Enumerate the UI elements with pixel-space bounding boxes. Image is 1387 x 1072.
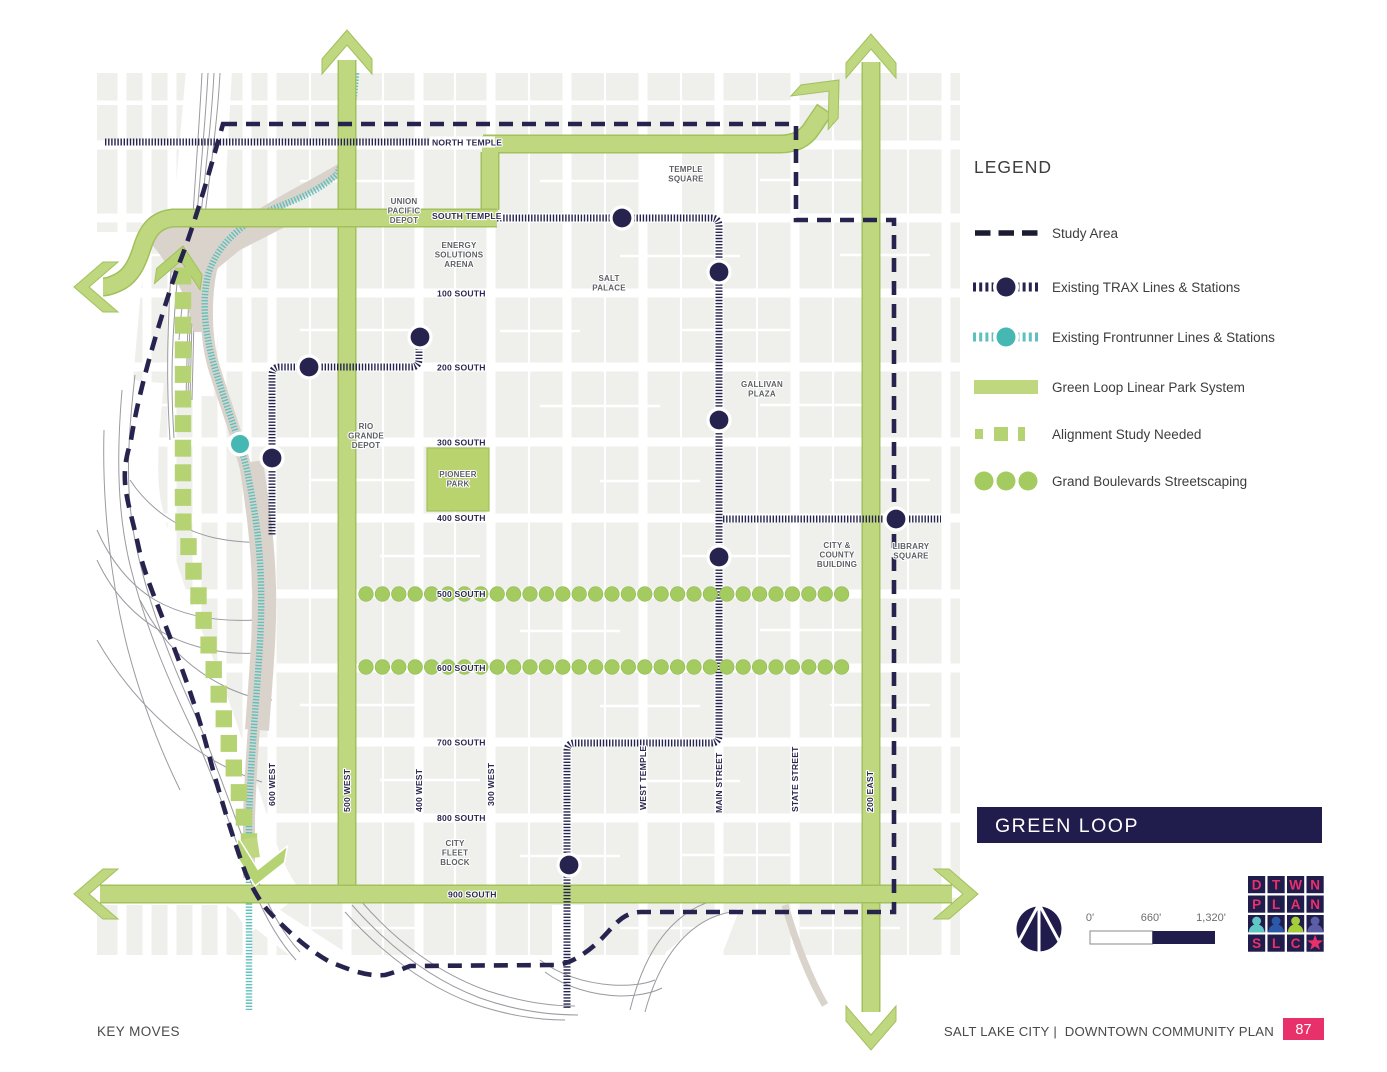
svg-text:0': 0'	[1086, 912, 1094, 924]
svg-text:PIONEER: PIONEER	[439, 470, 476, 479]
svg-text:L: L	[1272, 897, 1280, 912]
svg-text:800 SOUTH: 800 SOUTH	[437, 813, 486, 823]
svg-text:KEY MOVES: KEY MOVES	[97, 1024, 180, 1039]
svg-text:LIBRARY: LIBRARY	[893, 542, 930, 551]
svg-text:200 EAST: 200 EAST	[865, 770, 875, 812]
svg-text:SALT: SALT	[598, 274, 619, 283]
svg-text:TEMPLE: TEMPLE	[669, 165, 703, 174]
svg-text:400 WEST: 400 WEST	[414, 768, 424, 812]
svg-text:300 SOUTH: 300 SOUTH	[437, 438, 486, 448]
svg-text:WEST TEMPLE: WEST TEMPLE	[638, 746, 648, 810]
svg-text:N: N	[1310, 897, 1320, 912]
svg-text:Study Area: Study Area	[1052, 226, 1119, 241]
svg-text:COUNTY: COUNTY	[820, 551, 855, 560]
svg-text:Existing TRAX Lines & Stations: Existing TRAX Lines & Stations	[1052, 280, 1240, 295]
svg-text:L: L	[1272, 936, 1280, 951]
svg-text:STATE STREET: STATE STREET	[790, 746, 800, 812]
svg-text:PLAZA: PLAZA	[748, 390, 776, 399]
svg-text:T: T	[1272, 877, 1281, 892]
svg-text:900 SOUTH: 900 SOUTH	[448, 890, 497, 900]
svg-text:300 WEST: 300 WEST	[486, 762, 496, 806]
svg-text:P: P	[1252, 897, 1261, 912]
svg-text:LEGEND: LEGEND	[974, 157, 1052, 177]
svg-text:SQUARE: SQUARE	[893, 552, 929, 561]
svg-text:N: N	[1310, 877, 1320, 892]
svg-text:660': 660'	[1141, 912, 1161, 924]
svg-text:500 SOUTH: 500 SOUTH	[437, 589, 486, 599]
svg-text:W: W	[1289, 877, 1302, 892]
svg-text:GREEN LOOP: GREEN LOOP	[995, 815, 1139, 837]
svg-text:600 WEST: 600 WEST	[267, 762, 277, 806]
svg-text:S: S	[1252, 936, 1261, 951]
svg-text:NORTH TEMPLE: NORTH TEMPLE	[432, 138, 502, 148]
svg-text:PACIFIC: PACIFIC	[388, 207, 421, 216]
svg-text:Existing Frontrunner Lines & S: Existing Frontrunner Lines & Stations	[1052, 330, 1275, 345]
svg-text:MAIN STREET: MAIN STREET	[714, 752, 724, 813]
svg-text:FLEET: FLEET	[442, 849, 468, 858]
svg-text:ENERGY: ENERGY	[442, 241, 477, 250]
svg-text:GALLIVAN: GALLIVAN	[741, 380, 783, 389]
svg-text:400 SOUTH: 400 SOUTH	[437, 513, 486, 523]
svg-text:A: A	[1291, 897, 1301, 912]
svg-text:D: D	[1252, 877, 1262, 892]
svg-text:SOLUTIONS: SOLUTIONS	[435, 251, 484, 260]
svg-text:200 SOUTH: 200 SOUTH	[437, 363, 486, 373]
svg-text:600 SOUTH: 600 SOUTH	[437, 663, 486, 673]
svg-text:Grand Boulevards Streetscaping: Grand Boulevards Streetscaping	[1052, 474, 1247, 489]
svg-text:CITY: CITY	[445, 839, 464, 848]
svg-text:BUILDING: BUILDING	[817, 560, 857, 569]
svg-text:BLOCK: BLOCK	[440, 858, 469, 867]
svg-text:700 SOUTH: 700 SOUTH	[437, 738, 486, 748]
svg-text:SALT LAKE CITY | DOWNTOWN COM: SALT LAKE CITY | DOWNTOWN COMMUNITY PLAN	[944, 1024, 1274, 1039]
svg-text:100 SOUTH: 100 SOUTH	[437, 289, 486, 299]
svg-text:Alignment Study Needed: Alignment Study Needed	[1052, 427, 1201, 442]
svg-text:ARENA: ARENA	[444, 260, 473, 269]
svg-text:CITY &: CITY &	[823, 541, 850, 550]
svg-text:SQUARE: SQUARE	[668, 175, 704, 184]
svg-text:87: 87	[1295, 1022, 1311, 1038]
svg-text:SOUTH TEMPLE: SOUTH TEMPLE	[432, 211, 502, 221]
svg-text:DEPOT: DEPOT	[352, 441, 381, 450]
svg-text:DEPOT: DEPOT	[390, 216, 419, 225]
svg-text:PALACE: PALACE	[592, 284, 626, 293]
svg-text:UNION: UNION	[391, 197, 418, 206]
svg-text:500 WEST: 500 WEST	[342, 768, 352, 812]
svg-text:1,320': 1,320'	[1196, 912, 1226, 924]
svg-text:C: C	[1291, 936, 1301, 951]
svg-text:GRANDE: GRANDE	[348, 432, 384, 441]
svg-text:Green Loop Linear Park System: Green Loop Linear Park System	[1052, 380, 1245, 395]
svg-text:RIO: RIO	[359, 422, 374, 431]
svg-text:PARK: PARK	[447, 480, 470, 489]
